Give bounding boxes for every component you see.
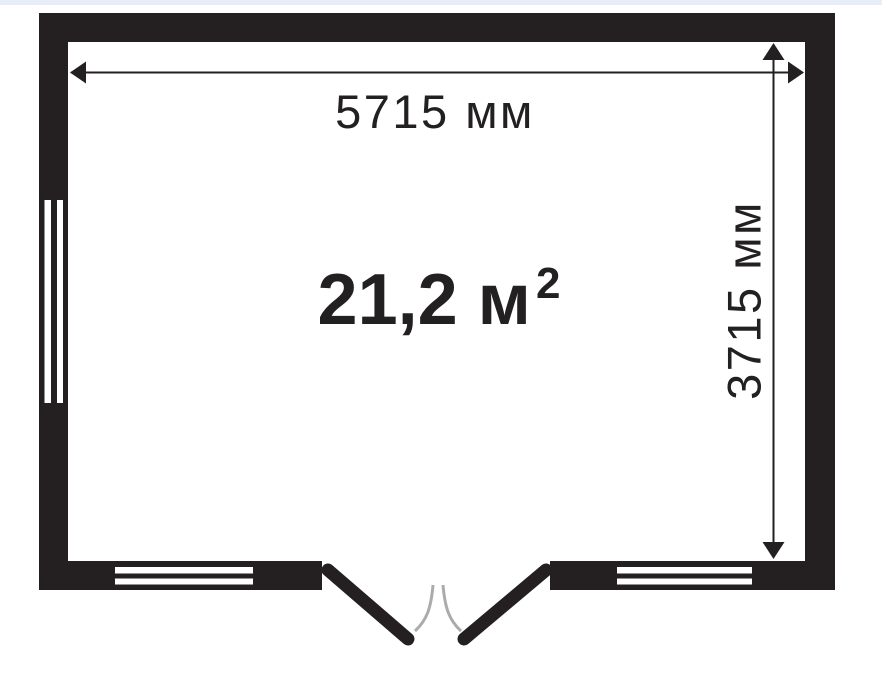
window-bottom-left-stripe-1 (115, 567, 253, 574)
area-value: 21,2 м (318, 260, 531, 340)
window-bottom-right-stripe-1 (617, 567, 752, 574)
area-label: 21,2 м2 (139, 262, 739, 336)
door-swing-arc-right (443, 585, 461, 631)
wall-left (39, 13, 68, 590)
windows (45, 200, 753, 585)
width-dimension-label: 5715 мм (135, 88, 735, 135)
height-arrow-bottom-icon (763, 542, 785, 559)
door-leaf-right (464, 570, 546, 639)
window-left-stripe-2 (57, 200, 63, 403)
height-arrow-top-icon (763, 43, 785, 60)
area-exponent: 2 (536, 259, 560, 308)
wall-bottom-left (39, 561, 322, 590)
width-arrow-right-icon (788, 62, 804, 84)
door-leaf-left (328, 570, 408, 639)
door-swing-arcs (415, 585, 461, 631)
door-leaves (328, 570, 546, 639)
window-left-stripe-1 (45, 200, 52, 403)
door-swing-arc-left (415, 585, 433, 631)
wall-bottom-right (550, 561, 835, 590)
wall-right (805, 13, 835, 590)
width-arrow-left-icon (70, 62, 86, 84)
window-bottom-right-stripe-2 (617, 579, 752, 585)
window-bottom-left-stripe-2 (115, 579, 253, 585)
wall-top (39, 13, 835, 42)
floorplan-page: 5715 мм 3715 мм 21,2 м2 (0, 0, 882, 673)
